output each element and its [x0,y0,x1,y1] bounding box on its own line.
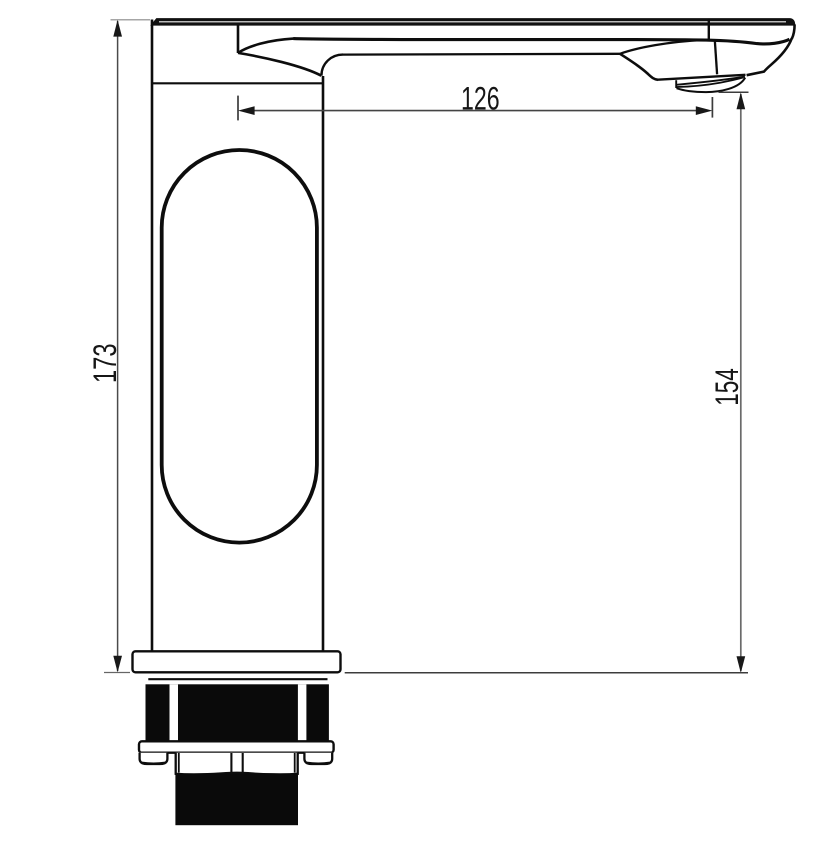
svg-text:173: 173 [88,344,123,383]
svg-text:154: 154 [709,368,745,406]
svg-text:126: 126 [461,81,500,117]
